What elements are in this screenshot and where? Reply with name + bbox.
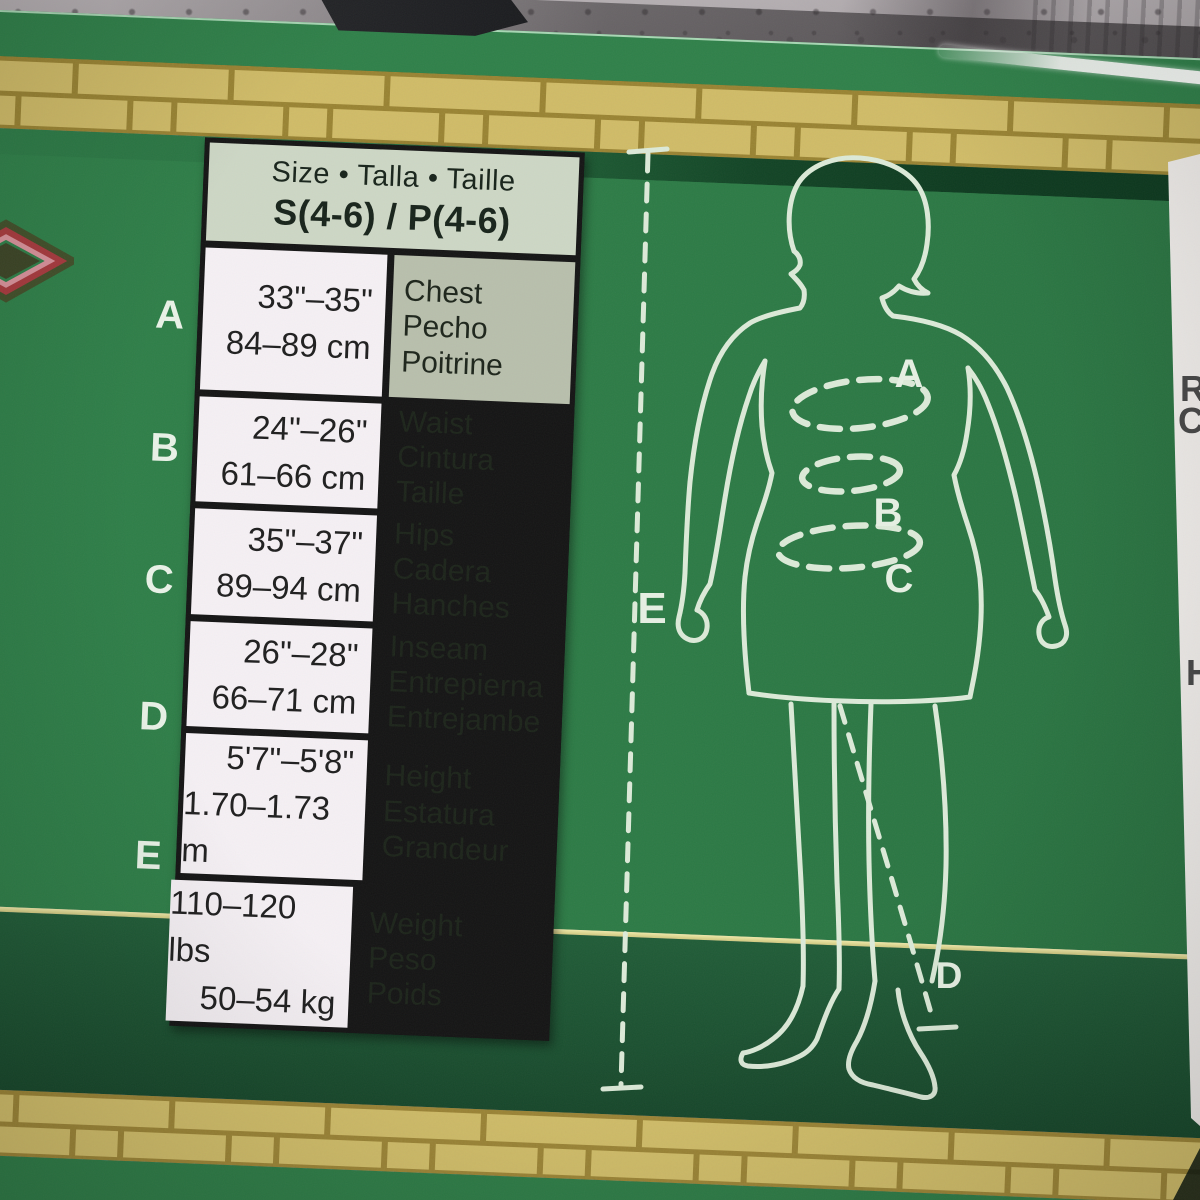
partial-letter: H [1186,652,1200,694]
label-cell: Height Estatura Grandeur [369,740,555,888]
marker-b: B [874,491,903,535]
measurement-imperial: 35"–37" [247,516,364,567]
measurement-cell: 26"–28" 66–71 cm [186,621,372,734]
label-fr: Grandeur [381,829,552,871]
measurement-cell: 110–120 lbs 50–54 kg [166,880,353,1028]
measurement-imperial: 26"–28" [242,629,359,680]
row-letter: C [135,557,183,604]
label-cell: Hips Cadera Hanches [380,516,565,628]
marker-e: E [637,584,666,633]
waist-measure-hoop [801,453,902,495]
measurement-metric: 1.70–1.73 m [180,780,353,880]
marker-a: A [895,352,924,396]
measurement-cell: 24"–26" 61–66 cm [195,396,381,509]
size-table: A B C D E Size • Talla • Taille S(4-6) /… [169,137,584,1041]
measurement-cell: 35"–37" 89–94 cm [191,509,377,622]
measurement-cell: 5'7"–5'8" 1.70–1.73 m [180,733,367,881]
measurement-metric: 89–94 cm [215,562,362,615]
label-cell: Waist Cintura Taille [384,404,569,516]
label-fr: Entrejambe [386,699,557,741]
inseam-measure-line [840,706,933,1020]
size-table-header: Size • Talla • Taille S(4-6) / P(4-6) [206,143,580,256]
label-cell: Inseam Entrepierna Entrejambe [375,628,560,740]
measurement-imperial: 5'7"–5'8" [225,735,355,787]
height-line-bottom-tick [603,1087,641,1089]
row-letter: E [124,833,172,880]
inseam-line-bottom-tick [919,1027,956,1029]
label-cell: Weight Peso Poids [354,888,540,1036]
label-cell: Chest Pecho Poitrine [389,255,576,404]
table-row-height: 5'7"–5'8" 1.70–1.73 m Height Estatura Gr… [180,733,555,888]
table-row-weight: 110–120 lbs 50–54 kg Weight Peso Poids [166,880,550,1036]
measurement-imperial: 33"–35" [257,274,374,325]
measurement-metric: 50–54 kg [199,975,337,1027]
label-fr: Taille [395,474,566,516]
measurement-imperial: 110–120 lbs [167,880,340,980]
row-letter: D [130,694,178,741]
table-row-chest: 33"–35" 84–89 cm Chest Pecho Poitrine [200,247,575,404]
measurement-metric: 84–89 cm [225,319,372,372]
row-letter: B [141,425,189,472]
marker-c: C [885,557,914,601]
measurement-imperial: 24"–26" [251,404,368,455]
package-photo: A B C D E Size • Talla • Taille S(4-6) /… [0,0,1200,1200]
table-row-waist: 24"–26" 61–66 cm Waist Cintura Taille [195,396,569,516]
label-fr: Poitrine [401,344,572,386]
label-fr: Hanches [391,587,562,629]
table-row-hips: 35"–37" 89–94 cm Hips Cadera Hanches [191,509,565,629]
measurement-metric: 66–71 cm [211,674,358,727]
measurement-metric: 61–66 cm [220,450,367,503]
table-row-inseam: 26"–28" 66–71 cm Inseam Entrepierna Entr… [186,621,560,741]
figure-diagram: A B C D E [560,90,1120,1120]
size-value: S(4-6) / P(4-6) [273,191,512,242]
logo-diamond-partial [0,216,74,306]
marker-d: D [936,955,963,996]
woman-silhouette [678,158,1066,1098]
row-letter: A [146,292,194,339]
label-fr: Poids [366,976,537,1018]
partial-letter: C [1178,400,1200,442]
measurement-cell: 33"–35" 84–89 cm [200,247,388,396]
